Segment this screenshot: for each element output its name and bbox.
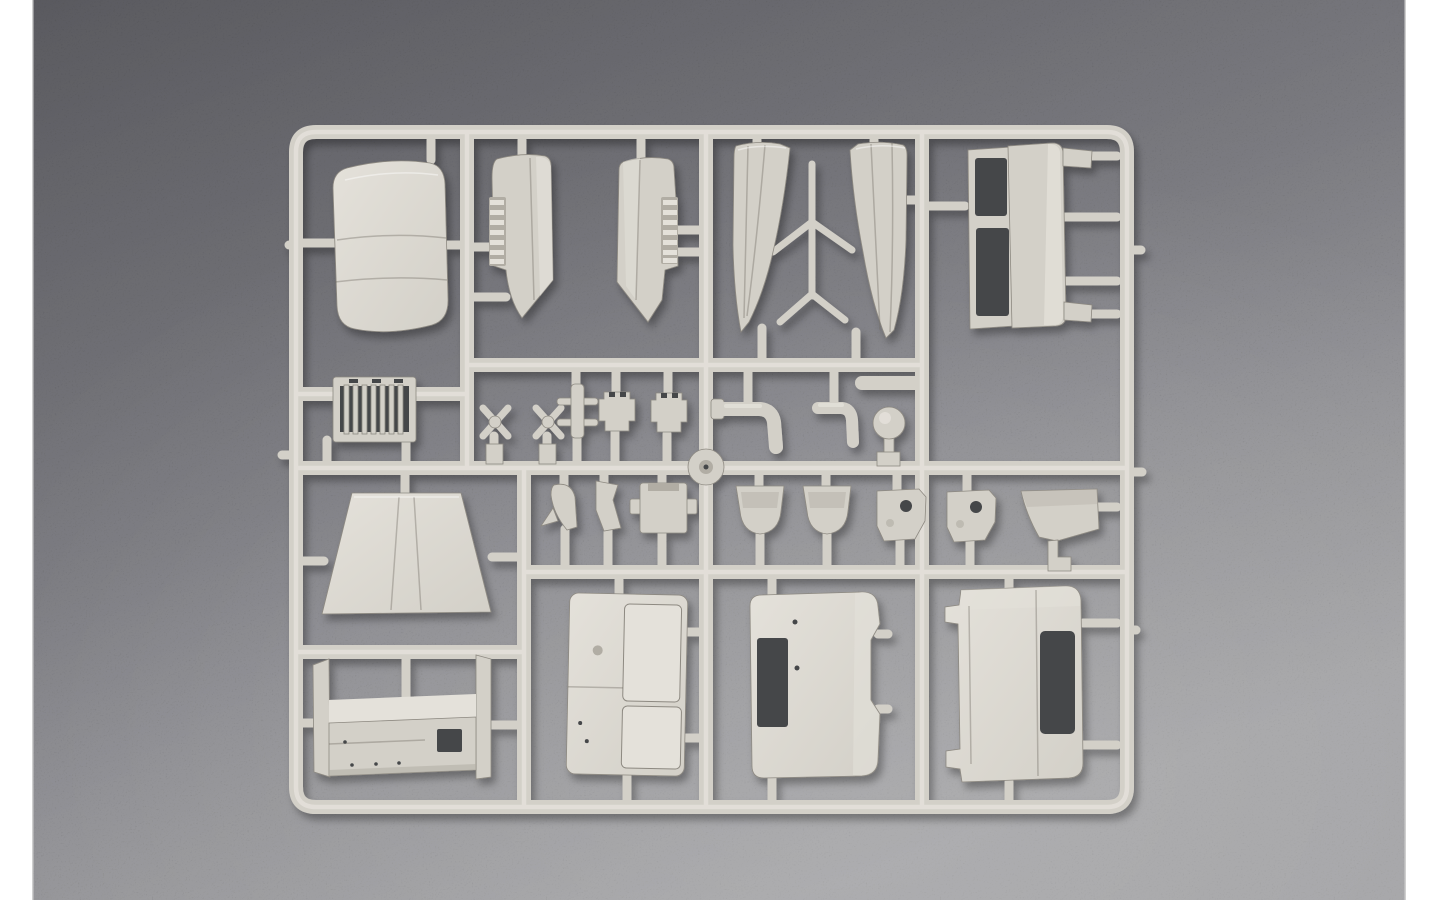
part-holed-bracket-1 — [877, 489, 926, 541]
part-holed-bracket-2 — [947, 490, 996, 542]
part-radiator-grille — [333, 377, 416, 442]
part-cab-side-panel — [945, 586, 1083, 782]
part-cab-back-panel — [750, 592, 880, 778]
part-door-panel — [566, 593, 688, 776]
part-tabbed-block — [630, 483, 697, 533]
sprue-photo — [0, 0, 1440, 900]
sprue — [282, 132, 1142, 807]
white-right-bar — [1406, 0, 1440, 900]
part-roof-panel — [333, 161, 448, 332]
part-hood-panel — [322, 493, 491, 614]
white-left-bar — [0, 0, 32, 900]
photo-stage — [0, 0, 1440, 900]
part-hub-disc — [688, 449, 724, 485]
